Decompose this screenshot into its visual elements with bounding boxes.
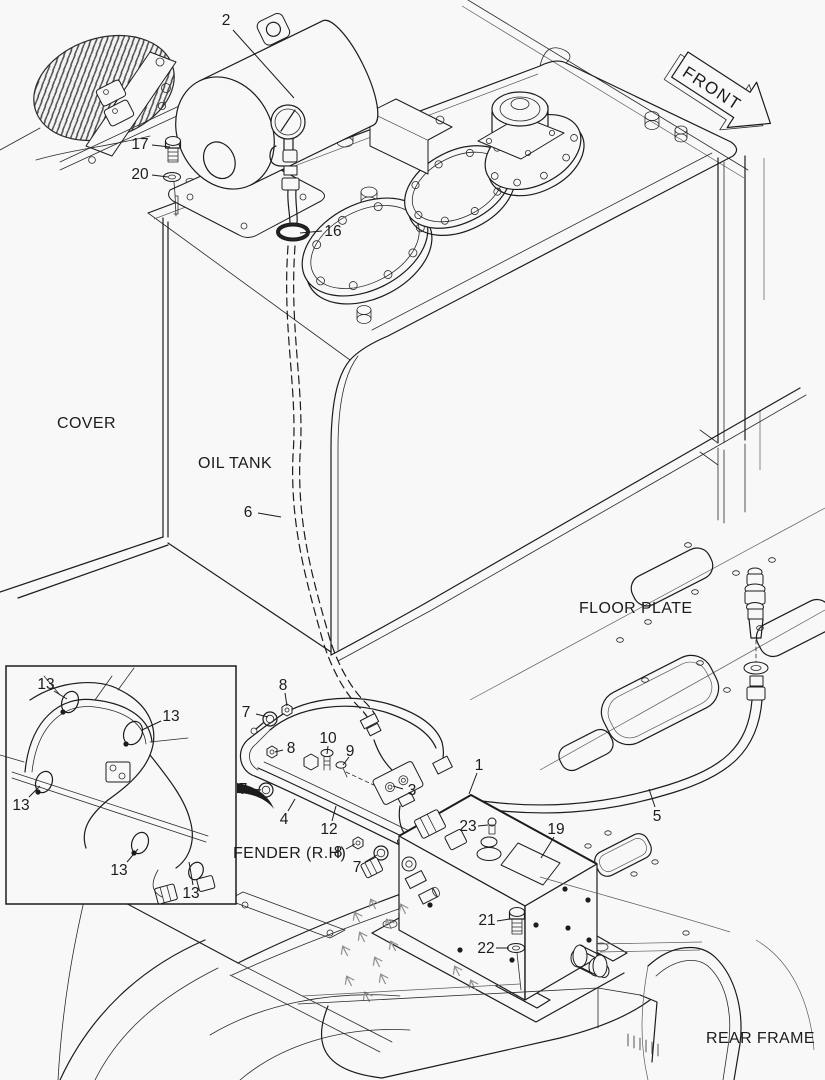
callout-3: 3 xyxy=(408,782,417,799)
callout-6: 6 xyxy=(244,504,253,521)
label-rear-frame: REAR FRAME xyxy=(706,1030,815,1047)
callout-17: 17 xyxy=(131,136,148,153)
callout-7-3: 7 xyxy=(353,859,362,876)
label-oil-tank: OIL TANK xyxy=(198,455,272,472)
callout-9: 9 xyxy=(346,743,355,760)
callout-22: 22 xyxy=(477,940,494,957)
label-fender-rh: FENDER (R.H) xyxy=(233,845,346,862)
callout-13-2: 13 xyxy=(162,708,179,725)
callout-8-1: 8 xyxy=(279,677,288,694)
callout-1: 1 xyxy=(475,757,484,774)
callout-20: 20 xyxy=(131,166,149,183)
callout-13-1: 13 xyxy=(37,676,54,693)
label-cover: COVER xyxy=(57,415,116,432)
front-direction-arrow: FRONT xyxy=(658,39,785,151)
callout-5: 5 xyxy=(653,808,662,825)
callout-13-5: 13 xyxy=(182,885,199,902)
detail-inset xyxy=(0,666,274,904)
callout-2: 2 xyxy=(222,12,231,29)
callout-7-1: 7 xyxy=(242,704,251,721)
callout-23: 23 xyxy=(459,818,476,835)
label-floor-plate: FLOOR PLATE xyxy=(579,600,692,617)
callout-21: 21 xyxy=(478,912,495,929)
callout-16: 16 xyxy=(324,223,341,240)
callout-13-3: 13 xyxy=(12,797,29,814)
parts-diagram: FRONT 2 17 20 16 6 13 xyxy=(0,0,825,1080)
callout-19: 19 xyxy=(547,821,564,838)
callout-13-4: 13 xyxy=(110,862,127,879)
callout-7-2: 7 xyxy=(239,781,248,798)
callout-10: 10 xyxy=(319,730,337,747)
parts-diagram-page: FRONT 2 17 20 16 6 13 xyxy=(0,0,825,1080)
callout-4: 4 xyxy=(280,811,289,828)
control-box xyxy=(372,795,627,1022)
callout-8-2: 8 xyxy=(287,740,296,757)
callout-12: 12 xyxy=(320,821,337,838)
